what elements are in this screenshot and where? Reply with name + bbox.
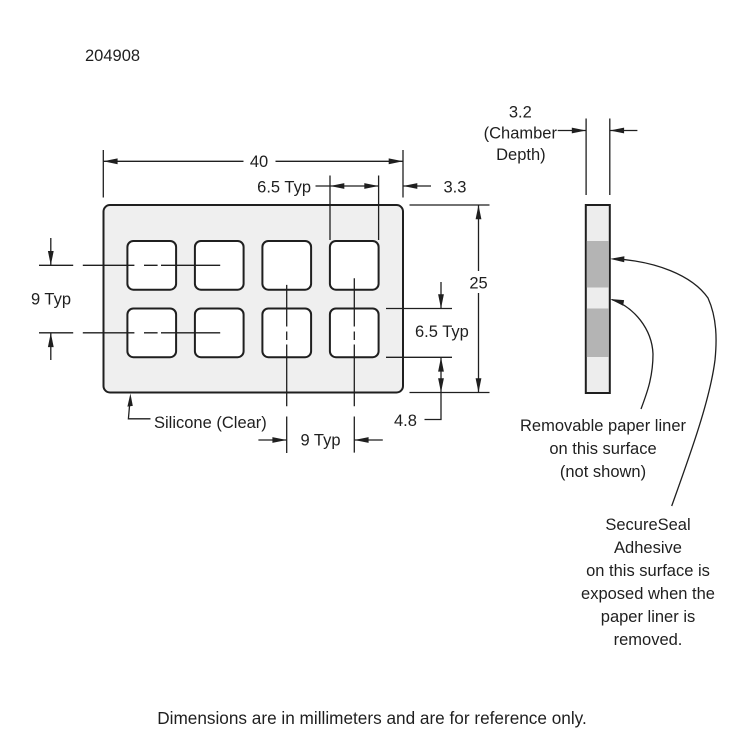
svg-text:204908: 204908	[85, 47, 140, 65]
svg-text:6.5 Typ: 6.5 Typ	[415, 323, 469, 341]
svg-text:Removable paper liner: Removable paper liner	[520, 417, 687, 435]
svg-text:paper liner is: paper liner is	[601, 608, 695, 626]
svg-text:3.2: 3.2	[509, 104, 532, 122]
svg-text:Silicone (Clear): Silicone (Clear)	[154, 414, 267, 432]
svg-text:exposed when the: exposed when the	[581, 585, 715, 603]
svg-text:Adhesive: Adhesive	[614, 539, 682, 557]
svg-text:3.3: 3.3	[444, 179, 467, 197]
svg-text:6.5 Typ: 6.5 Typ	[257, 179, 311, 197]
svg-text:on this surface is: on this surface is	[586, 562, 710, 580]
svg-text:on this surface: on this surface	[549, 440, 656, 458]
svg-text:(Chamber: (Chamber	[484, 125, 558, 143]
svg-text:SecureSeal: SecureSeal	[605, 516, 690, 534]
svg-text:removed.: removed.	[614, 631, 683, 649]
svg-text:25: 25	[469, 275, 487, 293]
svg-text:9 Typ: 9 Typ	[300, 432, 340, 450]
svg-text:40: 40	[250, 153, 268, 171]
svg-text:Dimensions are in millimeters: Dimensions are in millimeters and are fo…	[157, 708, 587, 728]
svg-text:(not shown): (not shown)	[560, 463, 646, 481]
svg-text:4.8: 4.8	[394, 412, 417, 430]
svg-text:9 Typ: 9 Typ	[31, 291, 71, 309]
svg-text:Depth): Depth)	[496, 146, 546, 164]
